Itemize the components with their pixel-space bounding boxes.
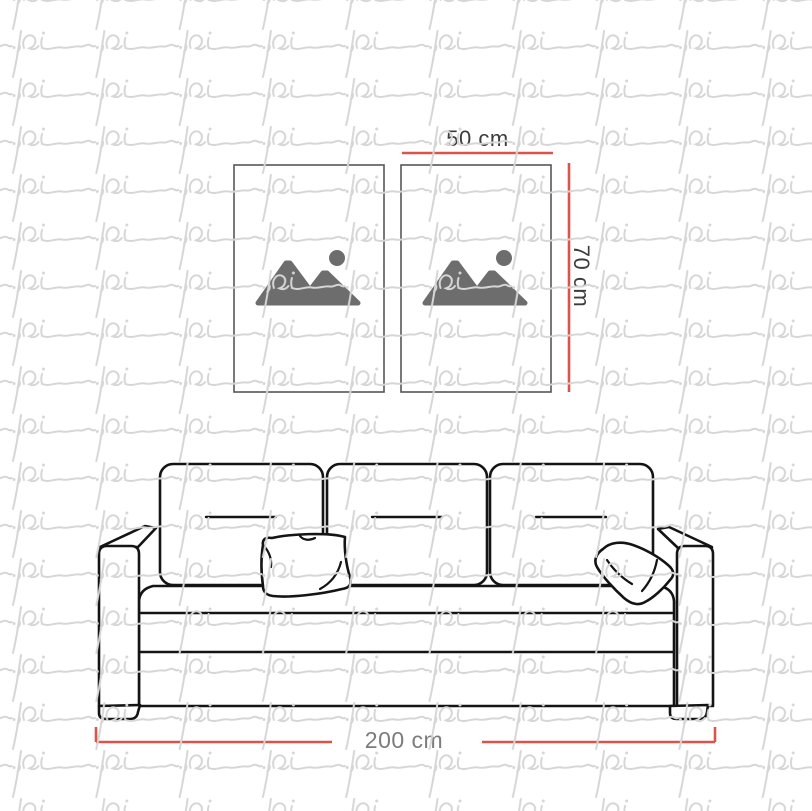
sofa-foot-left	[99, 705, 140, 719]
sofa-width-label: 200 cm	[304, 729, 504, 752]
scene-artwork	[0, 0, 812, 811]
sofa-seat	[139, 586, 674, 706]
sofa-arm-right	[677, 546, 713, 706]
sofa-back-cushion	[327, 464, 487, 585]
wall-frame-left	[234, 165, 384, 392]
frame-height-label: 70 cm	[570, 245, 592, 307]
size-guide-canvas	[0, 0, 812, 811]
frame-width-label: 50 cm	[402, 128, 553, 150]
sofa-arm-left-top	[100, 526, 156, 547]
sofa-foot-right	[670, 705, 708, 719]
sofa-illustration	[99, 464, 713, 719]
wall-frame-right	[401, 165, 551, 392]
sofa-arm-left	[99, 546, 139, 706]
size-guide-mockup: { "watermark": { "text": "pi", "color": …	[0, 0, 812, 811]
wall-frames	[234, 165, 551, 392]
throw-pillow-left	[262, 534, 351, 596]
